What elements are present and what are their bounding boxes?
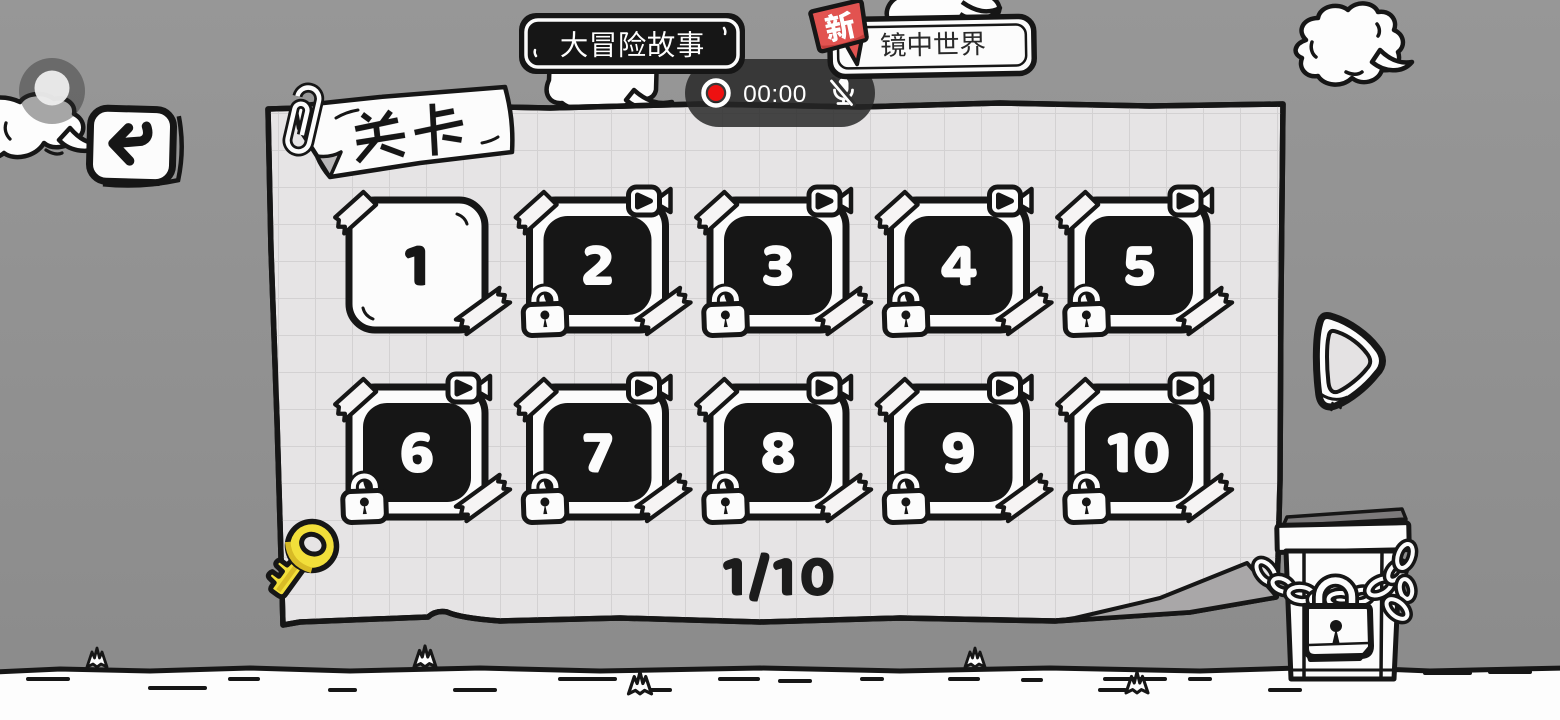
svg-text:00:00: 00:00: [743, 81, 807, 108]
